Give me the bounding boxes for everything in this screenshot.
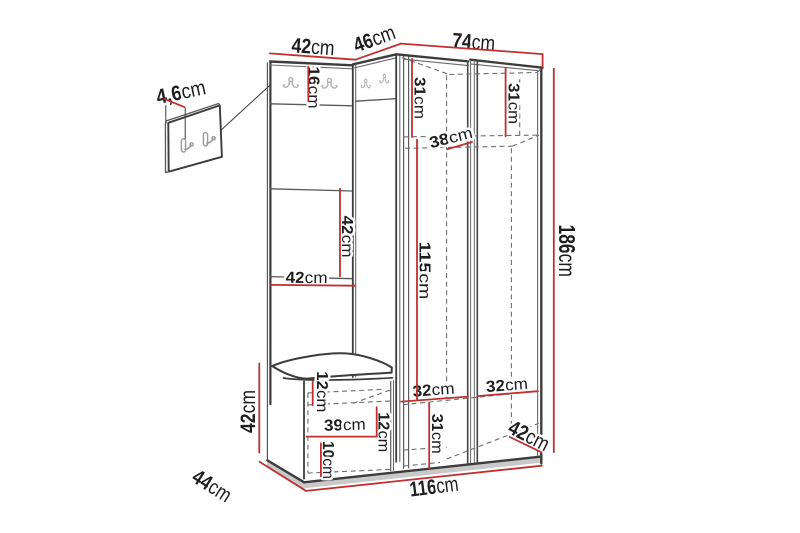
svg-text:115cm: 115cm <box>416 242 434 300</box>
svg-text:186cm: 186cm <box>554 224 579 276</box>
svg-text:39cm: 39cm <box>324 415 366 435</box>
svg-text:42cm: 42cm <box>236 390 260 433</box>
svg-text:74cm: 74cm <box>451 29 496 56</box>
svg-text:42cm: 42cm <box>286 268 328 287</box>
svg-text:31cm: 31cm <box>411 77 429 119</box>
svg-text:31cm: 31cm <box>504 83 522 124</box>
svg-text:4,6cm: 4,6cm <box>154 76 208 109</box>
svg-text:31cm: 31cm <box>428 414 446 454</box>
svg-text:32cm: 32cm <box>412 379 455 400</box>
svg-text:42cm: 42cm <box>339 216 357 258</box>
svg-text:44cm: 44cm <box>188 465 236 507</box>
svg-text:42cm: 42cm <box>504 416 553 457</box>
svg-text:10cm: 10cm <box>319 441 336 479</box>
svg-text:12cm: 12cm <box>313 371 331 412</box>
